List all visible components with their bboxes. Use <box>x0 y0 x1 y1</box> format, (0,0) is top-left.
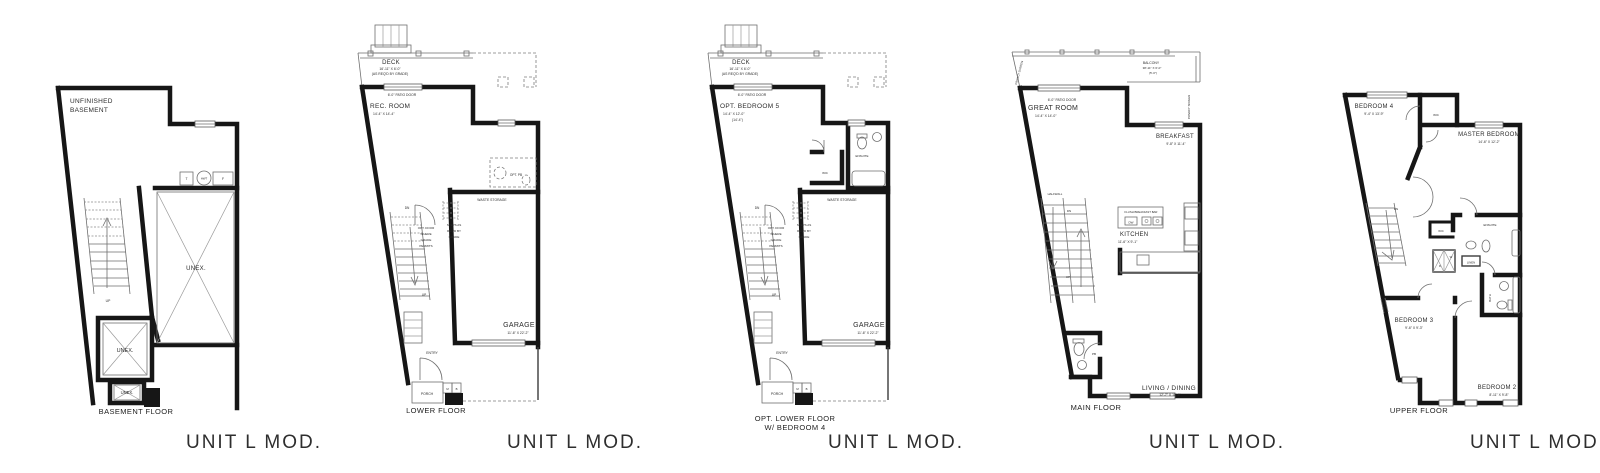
deck-label: DECK <box>382 60 400 66</box>
dishwasher-label: DW <box>1129 221 1134 225</box>
waste-storage-label: WASTE STORAGE <box>827 198 857 202</box>
unex-tiny-label: UNEX. <box>121 390 134 395</box>
dryer-label: D <box>1439 264 1441 268</box>
kitchen-dims: 11'-6" X 9'-1" <box>1118 240 1138 244</box>
steps-l1: STEPS AS <box>797 223 812 227</box>
upper-floor-label: UPPER FLOOR <box>1390 406 1448 415</box>
garage-dims: 11'-6" X 22'-2" <box>507 331 529 335</box>
unfinished-basement-label-2: BASEMENT <box>70 107 108 114</box>
floorplan-basement: UNFINISHED BASEMENT T HWT F UNEX. UNEX. … <box>40 80 250 425</box>
stairs <box>1366 203 1406 266</box>
unit-title-main: UNIT L MOD. <box>1149 432 1285 454</box>
bedroom3-label: BEDROOM 3 <box>1395 318 1434 324</box>
floorplan-opt-lower: DECK 16'-11" X 6'-0" (AS REQ'D BY GRADE)… <box>690 15 915 415</box>
garage-label: GARAGE <box>853 322 885 329</box>
steps-l2: REQ'D BY <box>797 229 811 233</box>
up-label: UP <box>106 299 111 303</box>
room-dims: 14'-4" X 14'-4" <box>373 112 395 116</box>
laundry <box>1433 250 1455 272</box>
basement-floor-label: BASEMENT FLOOR <box>99 407 174 416</box>
washer-label: W <box>1450 255 1453 259</box>
room-dims2: (14'-4") <box>732 118 743 122</box>
room-label: REC. ROOM <box>370 103 410 110</box>
balcony-note: (5'-0") <box>1149 71 1157 75</box>
deck <box>708 25 886 87</box>
opt-lower-floor-label-2: W/ BEDROOM 4 <box>764 423 825 432</box>
bedroom4-dims: 9'-4" X 13'-9" <box>1364 112 1384 116</box>
bath-label: BATH <box>1488 294 1492 302</box>
hot-water-tank-label: HWT <box>201 177 208 181</box>
opt-pb-label: OPT. PB <box>510 173 522 177</box>
unit-title-upper: UNIT L MOD. <box>1470 432 1600 454</box>
floorplan-lower: DECK 16'-11" X 6'-0" (AS REQ'D BY GRADE)… <box>340 15 565 410</box>
master-bedroom-dims: 14'-6" X 12'-2" <box>1478 140 1500 144</box>
unit-title-opt-lower: UNIT L MOD. <box>828 432 964 454</box>
privacy-screen-left-label: PRIVACY SCREEN <box>1014 60 1024 85</box>
opt-door-l1: OPT. DOOR <box>418 226 435 230</box>
tank-label: T <box>185 177 187 181</box>
garage-label: GARAGE <box>503 322 535 329</box>
bedroom4-label: BEDROOM 4 <box>1355 104 1394 110</box>
deck <box>358 25 536 87</box>
meter-label: M <box>446 387 449 391</box>
deck-dims: 16'-11" X 6'-0" <box>379 67 401 71</box>
dn-label: DN <box>1067 209 1071 213</box>
steps-l2: REQ'D BY <box>447 229 461 233</box>
porch-label: PORCH <box>421 392 434 396</box>
up-label: UP <box>422 293 426 297</box>
opt-door-l2: WHERE <box>420 232 431 236</box>
steps-l3: GRADE <box>449 235 460 239</box>
dn-label: DN <box>1394 207 1398 211</box>
stairs <box>390 201 458 300</box>
deck-note: (AS REQ'D BY GRADE) <box>722 72 759 76</box>
main-floor-label: MAIN FLOOR <box>1071 403 1122 412</box>
master-bedroom-label: MASTER BEDROOM <box>1458 132 1520 138</box>
unit-title-lower: UNIT L MOD. <box>507 432 643 454</box>
steps-l1: STEPS AS <box>447 223 462 227</box>
opt-door-l3: GRADE <box>771 238 782 242</box>
room-label: OPT. BEDROOM 5 <box>720 103 780 110</box>
steps-l3: GRADE <box>799 235 810 239</box>
furnace-label: F <box>222 177 224 181</box>
great-room-label: GREAT ROOM <box>1028 105 1078 112</box>
porch-label: PORCH <box>771 392 784 396</box>
stairs <box>740 201 808 300</box>
up-label: UP <box>1066 275 1070 279</box>
unex-small-label: UNEX. <box>117 348 134 354</box>
wic1-label: WIC <box>1433 113 1440 117</box>
deck-label: DECK <box>732 60 750 66</box>
balcony-label: BALCONY <box>1143 61 1160 65</box>
great-room-dims: 14'-4" X 14'-0" <box>1035 114 1057 118</box>
lower-floor-label: LOWER FLOOR <box>406 406 466 415</box>
bedroom2-label: BEDROOM 2 <box>1478 385 1517 391</box>
pb-label: PB <box>1092 352 1096 356</box>
opt-door-l4: PERMITS <box>419 244 432 248</box>
garage-dims: 11'-6" X 22'-2" <box>857 331 879 335</box>
balcony <box>1012 50 1200 88</box>
dn-label: DN <box>405 206 410 210</box>
patio-door-label: 6'-0" PATIO DOOR <box>1048 98 1077 102</box>
privacy-screen-right-label: PRIVACY SCREEN <box>1187 95 1191 119</box>
opt-lower-floor-label-1: OPT. LOWER FLOOR <box>755 414 836 423</box>
windows <box>195 121 215 127</box>
b-label: B <box>456 387 458 391</box>
bedroom3-dims: 9'-6" X 9'-3" <box>1405 326 1423 330</box>
opt-door-l1: OPT. DOOR <box>768 226 785 230</box>
patio-door-label: 6'-0" PATIO DOOR <box>388 93 417 97</box>
stairs <box>84 198 130 294</box>
opt-door-l4: PERMITS <box>769 244 782 248</box>
opt-door-l2: WHERE <box>770 232 781 236</box>
meter-label: M <box>796 387 799 391</box>
room-dims: 14'-4" X 12'-0" <box>723 112 745 116</box>
entry-label: ENTRY <box>426 351 438 355</box>
walls <box>58 88 237 408</box>
patio-door-label: 6'-0" PATIO DOOR <box>738 93 767 97</box>
breakfast-dims: 9'-8" X 11'-4" <box>1166 142 1186 146</box>
ensuite-label: ENSUITE <box>1483 223 1496 227</box>
living-dining-dims: 12'-7" X 18'-6" <box>1159 393 1181 397</box>
halfwall-label: HALFWALL <box>1048 192 1063 196</box>
ensuite-label: ENSUITE <box>855 154 868 158</box>
opt-door-l3: GRADE <box>421 238 432 242</box>
waste-storage-label: WASTE STORAGE <box>477 198 507 202</box>
breakfast-label: BREAKFAST <box>1156 134 1194 140</box>
labels: BALCONY 38'-11" X 6'-0" (5'-0") PRIVACY … <box>1014 60 1196 397</box>
linen-label: LINEN <box>1467 261 1475 265</box>
dn-label: DN <box>755 206 760 210</box>
deck-dims: 16'-11" X 6'-0" <box>729 67 751 71</box>
deck-note: (AS REQ'D BY GRADE) <box>372 72 409 76</box>
wic-label: WIC <box>822 171 829 175</box>
living-dining-label: LIVING / DINING <box>1142 385 1196 392</box>
unfinished-basement-label-1: UNFINISHED <box>70 98 113 105</box>
walls <box>362 87 538 400</box>
b-label: B <box>806 387 808 391</box>
floorplan-sheet: UNFINISHED BASEMENT T HWT F UNEX. UNEX. … <box>0 0 1600 473</box>
kitchen-label: KITCHEN <box>1120 232 1148 238</box>
unex-large-label: UNEX. <box>186 266 206 272</box>
unit-title-basement: UNIT L MOD. <box>186 432 322 454</box>
breakfast-bar-label: FLUSH BREAKFAST BAR <box>1125 210 1158 214</box>
bath-fixtures <box>1497 277 1520 313</box>
floorplan-upper: BEDROOM 4 9'-4" X 13'-9" WIC MASTER BEDR… <box>1290 70 1535 420</box>
up-label: UP <box>772 293 776 297</box>
entry-label: ENTRY <box>776 351 788 355</box>
windows <box>1038 85 1183 399</box>
bedroom2-dims: 8'-11" X 9'-8" <box>1489 393 1509 397</box>
wic2-label: WIC <box>1438 229 1443 233</box>
balcony-dims: 38'-11" X 6'-0" <box>1143 66 1162 70</box>
floorplan-main: BALCONY 38'-11" X 6'-0" (5'-0") PRIVACY … <box>985 35 1213 420</box>
